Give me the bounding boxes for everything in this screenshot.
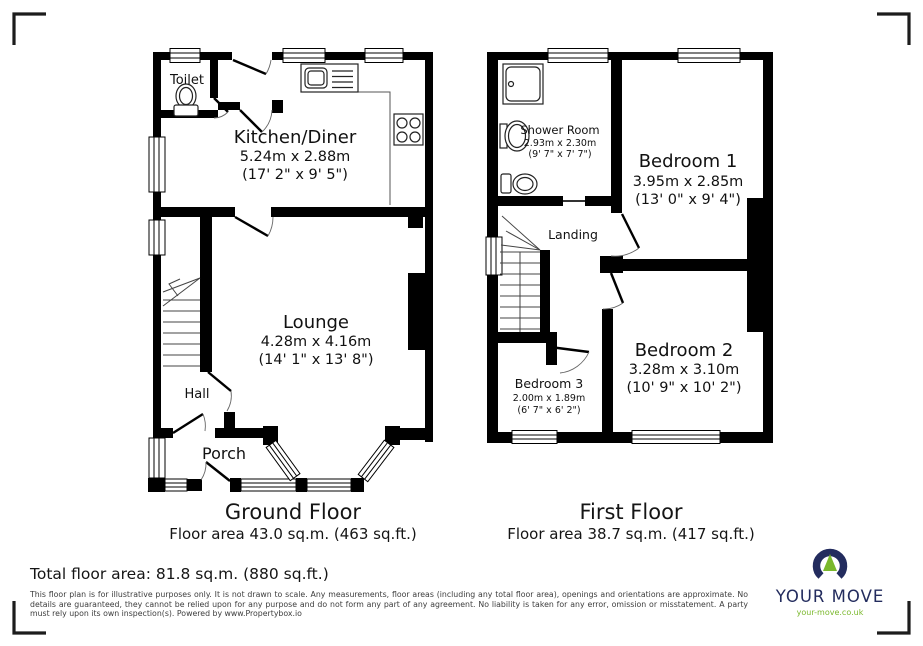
bedroom2-door-leaf (611, 273, 623, 303)
room-dim-kitchen-imperial: (17' 2" x 9' 5") (242, 167, 348, 183)
hob-icon (394, 114, 423, 145)
back-door-opening (232, 50, 272, 62)
front-door-leaf (206, 462, 230, 481)
room-dim-bedroom2-metric: 3.28m x 3.10m (629, 362, 740, 378)
corner-mark-top-right (877, 14, 909, 45)
chimney-breast-ground (408, 273, 433, 350)
ground-floor-area: Floor area 43.0 sq.m. (463 sq.ft.) (123, 525, 463, 543)
room-label-hall: Hall (185, 387, 210, 402)
window (149, 438, 165, 478)
room-dim-kitchen-metric: 5.24m x 2.88m (240, 149, 351, 165)
window (241, 479, 296, 491)
back-door-leaf (233, 60, 266, 74)
window (632, 431, 720, 444)
ground-floor-title: Ground Floor (143, 500, 443, 524)
room-dim-bedroom3-metric: 2.00m x 1.89m (513, 393, 585, 404)
window (512, 431, 557, 444)
window (283, 49, 325, 63)
sink-drainer-icon (301, 64, 358, 92)
your-move-logo: YOUR MOVE your-move.co.uk (770, 544, 890, 617)
stairs-ground (163, 278, 200, 366)
room-dim-lounge-metric: 4.28m x 4.16m (261, 334, 372, 350)
chimney-breast-first (747, 198, 773, 332)
window (170, 49, 200, 63)
bay-window-right (358, 440, 394, 481)
window (149, 220, 165, 255)
hall-porch-door-leaf (173, 414, 203, 433)
room-dim-bedroom2-imperial: (10' 9" x 10' 2") (627, 380, 742, 396)
stairs-first (500, 216, 540, 332)
kitchen-worktop (357, 92, 390, 205)
floorplan-page: Toilet Kitchen/Diner 5.24m x 2.88m (17' … (0, 0, 923, 646)
room-label-toilet: Toilet (169, 73, 204, 88)
window (486, 237, 502, 275)
room-dim-shower-imperial: (9' 7" x 7' 7") (528, 149, 591, 160)
first-floor-plan: Shower Room 2.93m x 2.30m (9' 7" x 7' 7"… (486, 49, 773, 444)
room-dim-bedroom3-imperial: (6' 7" x 6' 2") (517, 405, 580, 416)
room-label-landing: Landing (548, 227, 598, 242)
window (165, 479, 187, 491)
total-floor-area: Total floor area: 81.8 sq.m. (880 sq.ft.… (30, 565, 329, 583)
lounge-hall-door-leaf (208, 372, 231, 391)
disclaimer-text: This floor plan is for illustrative purp… (30, 590, 748, 619)
logo-brand-text: YOUR MOVE (770, 587, 890, 606)
room-dim-bedroom1-metric: 3.95m x 2.85m (633, 174, 744, 190)
room-label-kitchen: Kitchen/Diner (234, 127, 357, 148)
room-dim-shower-metric: 2.93m x 2.30m (524, 138, 596, 149)
room-label-bedroom3: Bedroom 3 (515, 376, 583, 391)
room-dim-bedroom1-imperial: (13' 0" x 9' 4") (635, 192, 741, 208)
corner-mark-top-left (14, 14, 46, 45)
window (365, 49, 403, 63)
room-dim-lounge-imperial: (14' 1" x 13' 8") (259, 352, 374, 368)
room-label-porch: Porch (202, 444, 246, 463)
bay-window-left (266, 440, 300, 480)
shower-tray-icon (503, 64, 543, 104)
first-floor-area: Floor area 38.7 sq.m. (417 sq.ft.) (461, 525, 801, 543)
lounge-kitchen-door-leaf (235, 217, 268, 236)
window (149, 137, 165, 192)
window (307, 479, 351, 491)
ground-floor-doors (173, 60, 273, 481)
first-floor-title: First Floor (481, 500, 781, 524)
room-label-bedroom1: Bedroom 1 (639, 151, 738, 172)
room-label-shower: Shower Room (520, 123, 599, 137)
room-label-bedroom2: Bedroom 2 (635, 340, 734, 361)
logo-url-text: your-move.co.uk (770, 608, 890, 617)
ground-floor-plan: Toilet Kitchen/Diner 5.24m x 2.88m (17' … (148, 49, 433, 493)
bedroom1-door-leaf (622, 214, 639, 248)
horseshoe-logo-icon (810, 544, 850, 582)
toilet-icon (174, 84, 198, 116)
room-label-lounge: Lounge (283, 312, 349, 333)
window (548, 49, 608, 63)
toilet-icon (501, 174, 537, 194)
window (678, 49, 740, 63)
